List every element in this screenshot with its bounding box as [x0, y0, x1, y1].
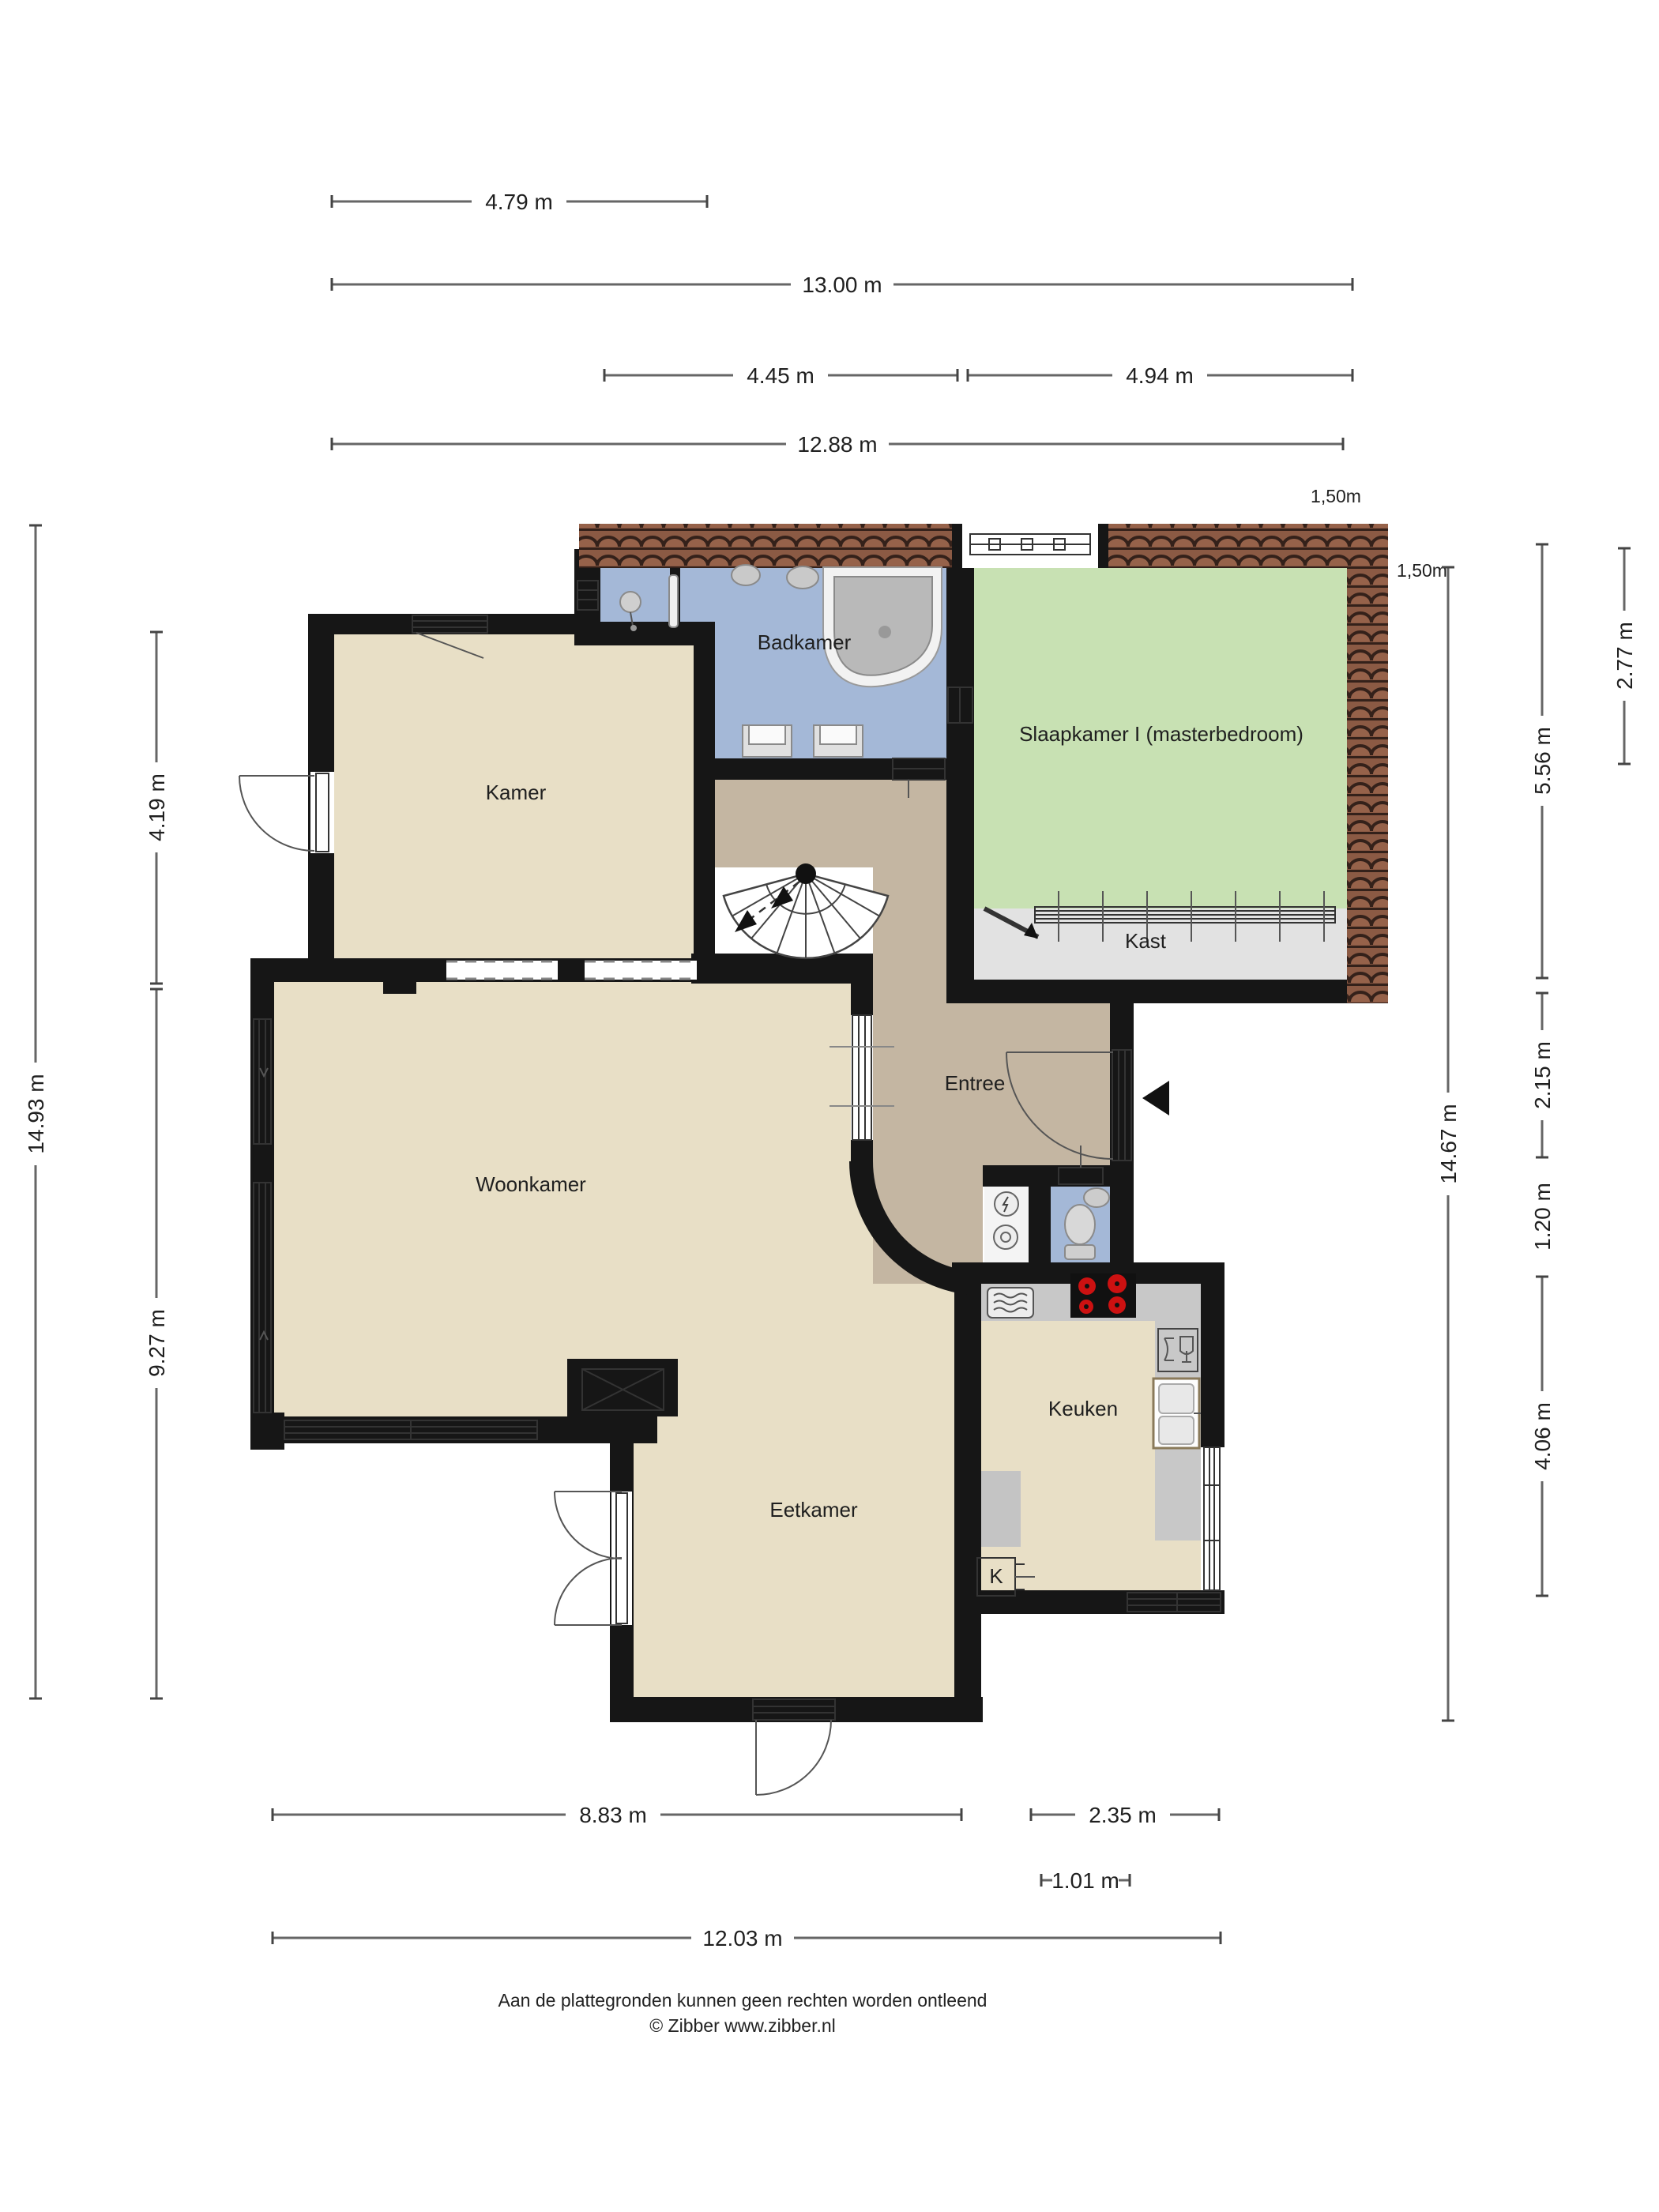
wall-segment: [383, 982, 416, 994]
radiator-icon: [669, 575, 678, 627]
label-entree: Entree: [945, 1071, 1006, 1095]
wall-segment: [610, 1697, 983, 1722]
svg-text:14.67 m: 14.67 m: [1436, 1104, 1461, 1183]
wall-segment: [952, 524, 962, 568]
wall-segment: [946, 566, 974, 980]
window: [1204, 1447, 1220, 1590]
svg-text:1.01 m: 1.01 m: [1051, 1868, 1119, 1893]
svg-text:4.94 m: 4.94 m: [1126, 363, 1194, 388]
label-keuken: Keuken: [1048, 1397, 1118, 1420]
svg-text:14.93 m: 14.93 m: [24, 1074, 48, 1153]
wall-segment: [1098, 524, 1108, 568]
wall-segment: [1110, 980, 1134, 1288]
svg-text:9.27 m: 9.27 m: [145, 1309, 169, 1377]
bathtub-icon: [823, 567, 942, 687]
floorplan-page: Badkamer Slaapkamer I (masterbedroom) Ka…: [0, 0, 1659, 2212]
dim-right-277: 2.77 m: [1612, 548, 1637, 764]
dim-top-479: 4.79 m: [332, 189, 707, 214]
dim-bottom-101: 1.01 m: [1041, 1868, 1130, 1893]
wall-segment: [574, 622, 715, 645]
dim-right-406: 4.06 m: [1529, 1277, 1555, 1596]
sink-icon: [787, 566, 818, 589]
hal-floor: [873, 867, 952, 1003]
dim-right-120: 1.20 m: [1529, 1172, 1555, 1262]
dim-top-1300: 13.00 m: [332, 272, 1352, 297]
shower-icon: [620, 592, 641, 612]
shower-handle: [630, 625, 637, 631]
wall-segment: [308, 614, 600, 634]
footer-disclaimer: Aan de plattegronden kunnen geen rechten…: [498, 1990, 987, 2011]
corner-sink-icon: [1084, 1188, 1109, 1207]
svg-text:12.03 m: 12.03 m: [702, 1926, 782, 1951]
kitchen-sink-icon: [1153, 1379, 1201, 1448]
dim-right-215: 2.15 m: [1529, 993, 1555, 1157]
sink-icon: [732, 565, 760, 585]
passage-floor: [873, 1284, 954, 1416]
wall-segment: [250, 1413, 284, 1450]
dim-left-419: 4.19 m: [144, 632, 169, 984]
fireplace-block: [567, 1359, 678, 1416]
dim-top-1288: 12.88 m: [332, 431, 1343, 457]
svg-text:4.19 m: 4.19 m: [145, 773, 169, 841]
badkamer-floor: [680, 566, 713, 622]
svg-text:12.88 m: 12.88 m: [797, 432, 877, 457]
entrance-arrow-icon: [1142, 1081, 1169, 1115]
door-arc: [756, 1720, 831, 1795]
wall-segment: [1201, 1262, 1224, 1447]
wall-segment: [1029, 1187, 1051, 1262]
dim-left-1493: 14.93 m: [23, 525, 48, 1698]
svg-text:2.35 m: 2.35 m: [1089, 1803, 1157, 1827]
label-kamer: Kamer: [486, 781, 547, 804]
label-150m: 1,50m: [1397, 560, 1447, 581]
svg-text:4.06 m: 4.06 m: [1530, 1402, 1555, 1470]
dim-left-927: 9.27 m: [144, 989, 169, 1698]
eetkamer-floor: [634, 1416, 954, 1697]
footer: Aan de plattegronden kunnen geen rechten…: [498, 1990, 987, 2036]
dim-top-494: 4.94 m: [968, 363, 1352, 388]
label-150m: 1,50m: [1311, 486, 1361, 506]
dim-bottom-1203: 12.03 m: [273, 1925, 1221, 1951]
wall-segment: [851, 982, 873, 1015]
hal-floor: [715, 780, 946, 867]
hob-icon: [1070, 1273, 1136, 1318]
svg-text:2.77 m: 2.77 m: [1612, 622, 1637, 690]
label-eetkamer: Eetkamer: [769, 1498, 858, 1522]
dim-bottom-883: 8.83 m: [273, 1802, 961, 1827]
dim-right-556: 5.56 m: [1529, 544, 1555, 978]
wall-segment: [851, 1140, 873, 1161]
door-arc: [239, 776, 314, 851]
door: [239, 772, 334, 853]
wall-segment: [946, 980, 1388, 1003]
wall-segment: [537, 1416, 657, 1443]
woonkamer-floor: [274, 982, 851, 1416]
svg-text:1.20 m: 1.20 m: [1530, 1183, 1555, 1251]
wall-segment: [954, 1590, 1224, 1614]
dim-right-1467: 14.67 m: [1435, 567, 1461, 1721]
label-k-closet: K: [989, 1564, 1003, 1588]
svg-text:2.15 m: 2.15 m: [1530, 1041, 1555, 1109]
wall-segment: [691, 954, 873, 984]
toilet-icon: [1065, 1205, 1095, 1259]
label-slaapkamer: Slaapkamer I (masterbedroom): [1019, 722, 1303, 746]
svg-text:4.45 m: 4.45 m: [747, 363, 814, 388]
microwave-icon: [987, 1288, 1033, 1318]
footer-copyright: © Zibber www.zibber.nl: [649, 2015, 836, 2036]
svg-text:4.79 m: 4.79 m: [485, 190, 553, 214]
floorplan-drawing: Badkamer Slaapkamer I (masterbedroom) Ka…: [0, 0, 1659, 2212]
kitchen-cabinet: [981, 1471, 1021, 1547]
wall-segment: [954, 1262, 981, 1722]
dim-bottom-235: 2.35 m: [1031, 1802, 1219, 1827]
wall-segment: [694, 645, 715, 984]
roof-window-opening: [962, 524, 1098, 568]
label-badkamer: Badkamer: [758, 630, 852, 654]
svg-text:5.56 m: 5.56 m: [1530, 727, 1555, 795]
dim-top-445: 4.45 m: [604, 363, 957, 388]
svg-text:13.00 m: 13.00 m: [802, 273, 882, 297]
double-door: [555, 1492, 632, 1625]
roof-band-right: [1347, 524, 1388, 1003]
label-kast: Kast: [1125, 929, 1167, 953]
svg-text:8.83 m: 8.83 m: [579, 1803, 647, 1827]
dishwasher-icon: [1158, 1329, 1198, 1371]
label-woonkamer: Woonkamer: [476, 1172, 586, 1196]
